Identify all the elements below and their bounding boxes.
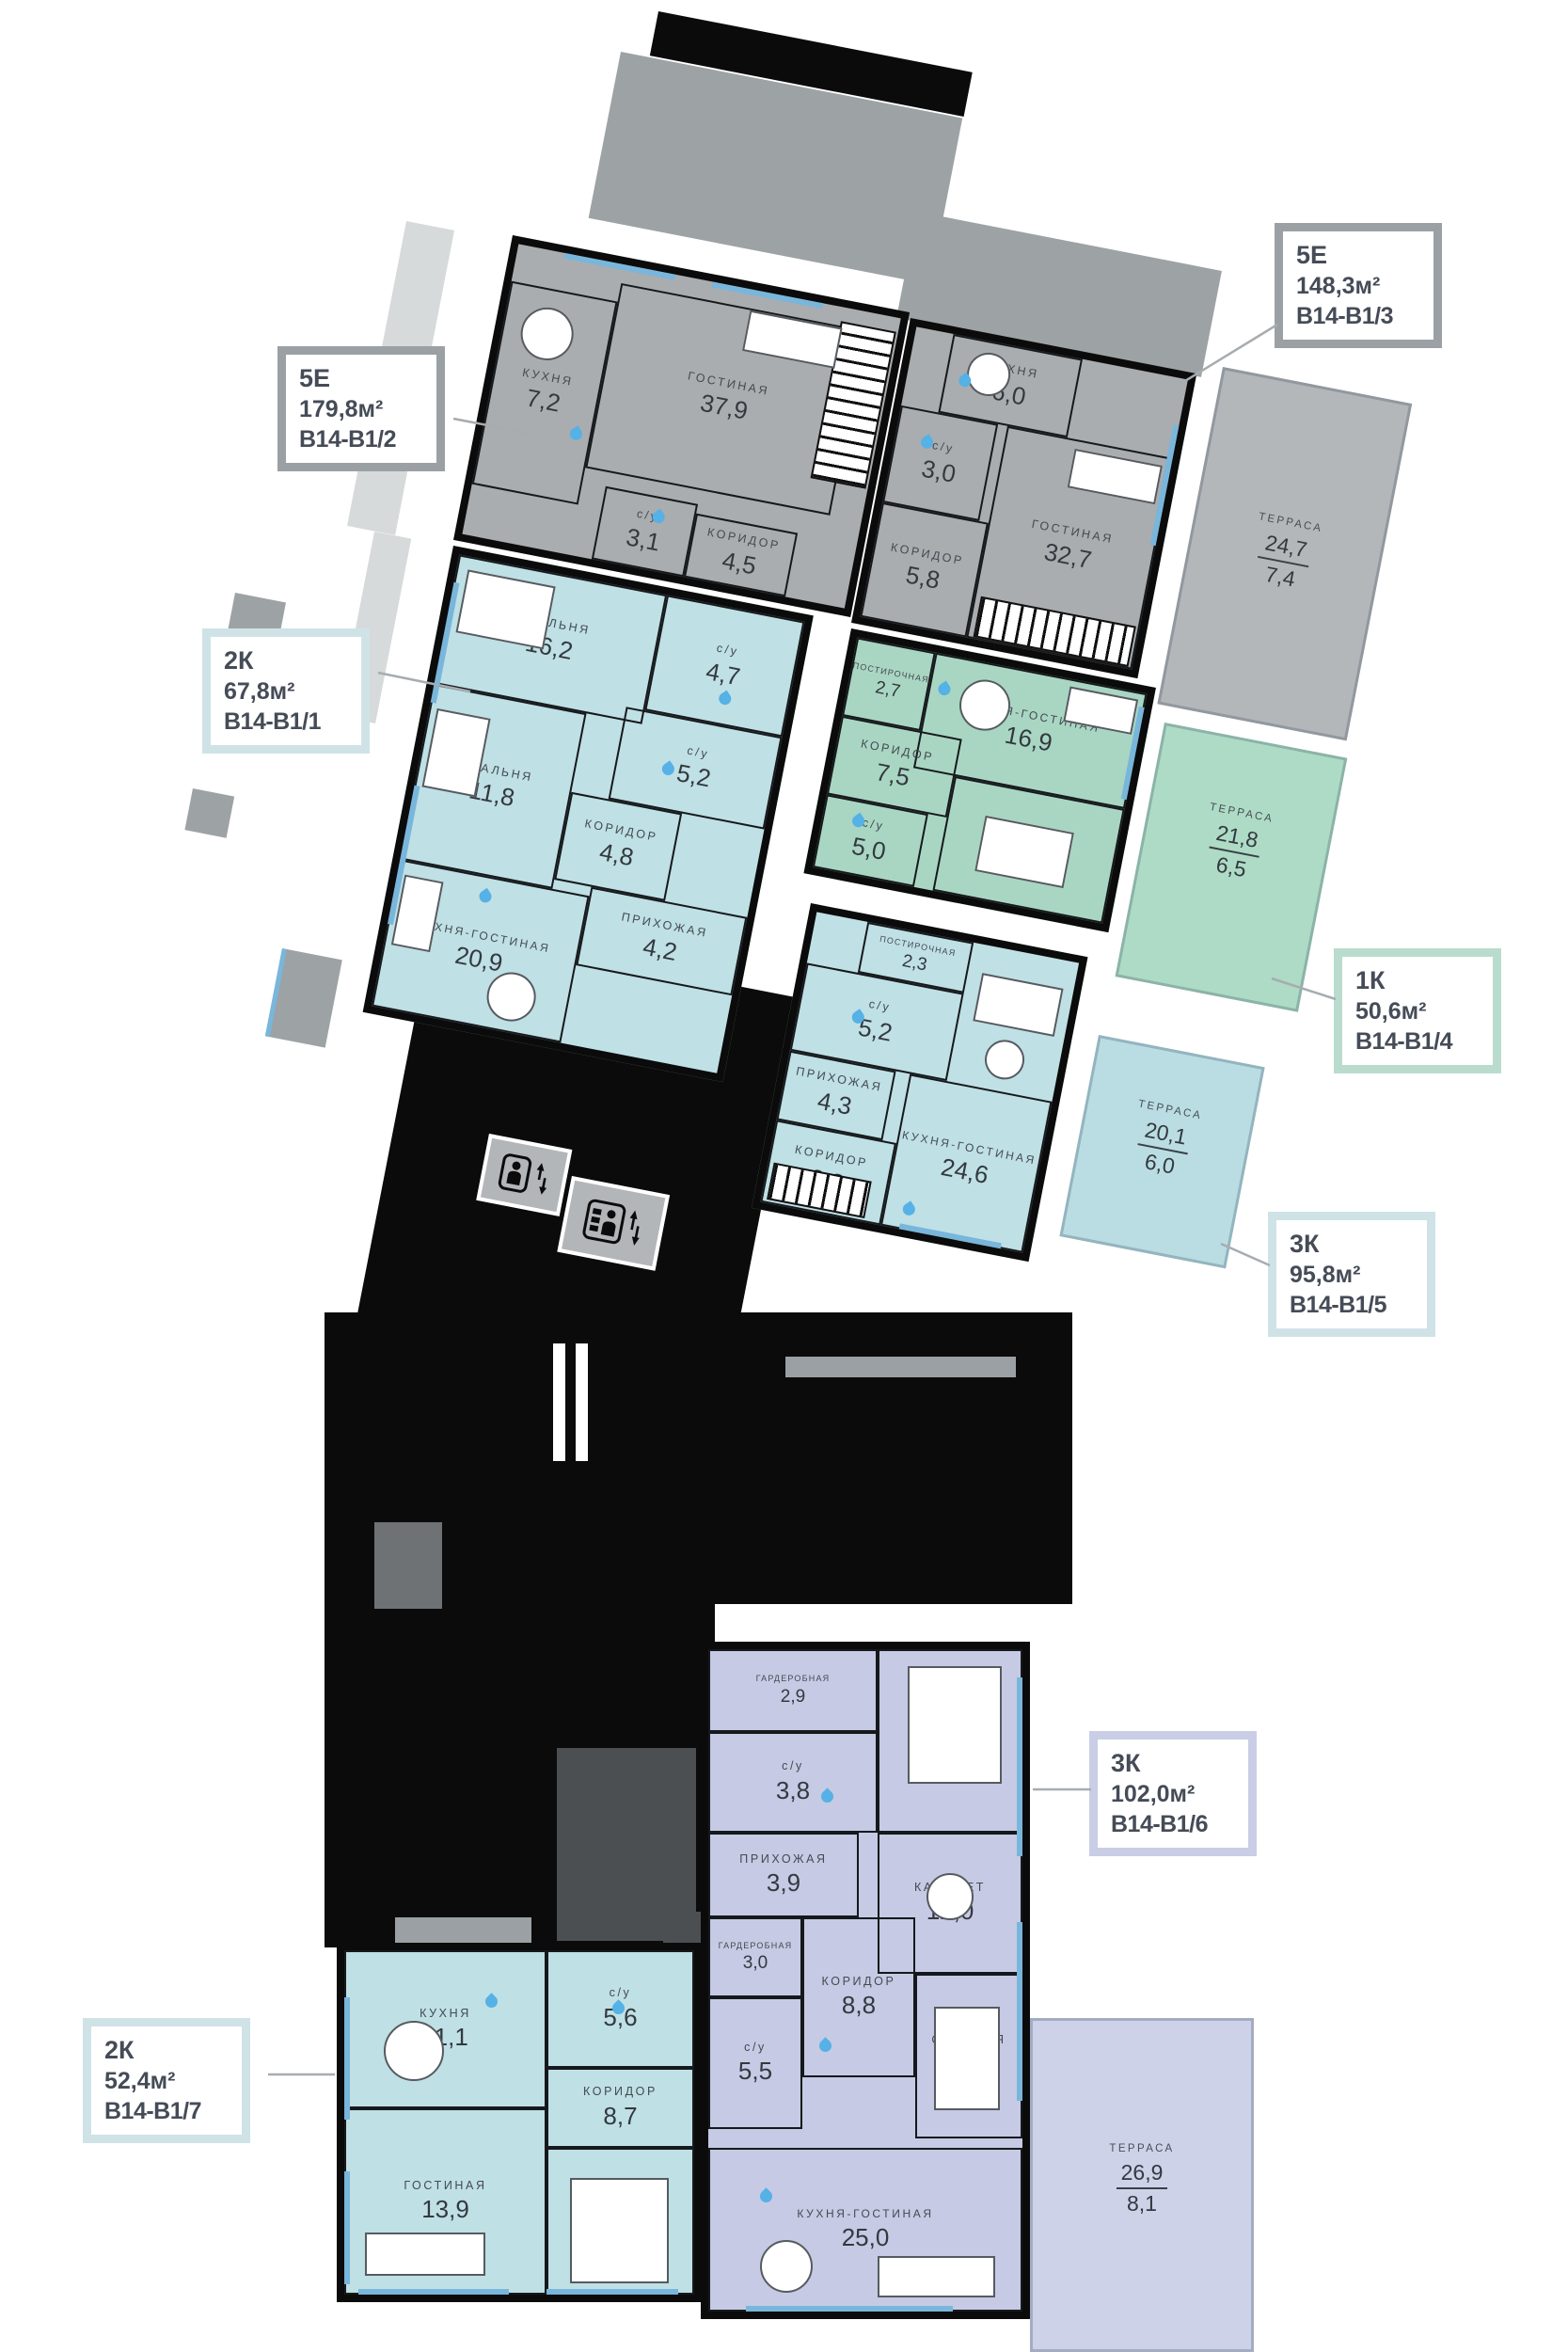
room-hall: ПРИХОЖАЯ 3,9 (708, 1833, 859, 1917)
room-bathroom: с/у 5,5 (708, 1997, 802, 2129)
unit-callout-v14-v1-7[interactable]: 2К 52,4м² В14-В1/7 (83, 2018, 250, 2143)
shaft-slit (576, 1343, 588, 1461)
apartment-unit-v14-v1-3[interactable]: КУХНЯ 6,0 с/у 3,0 КОРИДОР 5,8 ГОСТИНАЯ 3… (851, 318, 1196, 678)
bed-icon (570, 2178, 669, 2283)
room-hall: ПРИХОЖАЯ 4,2 (576, 887, 747, 996)
terrace-area: 21,86,5 (1203, 819, 1264, 884)
unit-callout-v14-v1-2[interactable]: 5Е 179,8м² В14-В1/2 (277, 346, 445, 471)
room-corridor: КОРИДОР 8,8 (802, 1917, 915, 2077)
room-wardrobe: ГАРДЕРОБНАЯ 2,9 (708, 1649, 878, 1732)
balcony-slab (265, 948, 342, 1048)
balcony-slab (184, 788, 234, 838)
terrace-area: 24,77,4 (1253, 529, 1314, 594)
terrace-purple: ТЕРРАСА 26,98,1 (1030, 2018, 1254, 2352)
apartment-unit-v14-v1-4[interactable]: ПОСТИРОЧНАЯ 2,7 КУХНЯ-ГОСТИНАЯ 16,9 КОРИ… (803, 628, 1156, 932)
terrace-green: ТЕРРАСА 21,86,5 (1116, 723, 1348, 1012)
table-icon (927, 1873, 974, 1920)
window-strip (546, 2289, 678, 2295)
window-strip (1017, 1922, 1022, 2101)
table-icon (760, 2240, 813, 2293)
corridor-slab (785, 1357, 1016, 1377)
corridor-slab (395, 1917, 531, 1943)
room-bathroom: с/у 3,8 (708, 1732, 878, 1833)
sofa-icon (973, 973, 1063, 1037)
apartment-unit-v14-v1-7[interactable]: КУХНЯ 11,1 с/у 5,6 КОРИДОР 8,7 ГОСТИНАЯ … (337, 1943, 702, 2302)
terrace-area: 20,16,0 (1132, 1117, 1194, 1182)
apartment-unit-v14-v1-5[interactable]: ПОСТИРОЧНАЯ 2,3 с/у 5,2 ПРИХОЖАЯ 4,3 КОР… (752, 903, 1087, 1262)
window-strip (1017, 1677, 1022, 1856)
room-corridor: КОРИДОР 8,7 (546, 2068, 694, 2148)
room-wardrobe: ГАРДЕРОБНАЯ 3,0 (708, 1917, 802, 1997)
room-corridor: КОРИДОР 4,5 (684, 514, 798, 597)
table-icon (981, 1037, 1027, 1083)
sofa-icon (878, 2256, 995, 2297)
unit-callout-v14-v1-4[interactable]: 1К 50,6м² В14-В1/4 (1334, 948, 1501, 1073)
unit-callout-v14-v1-3[interactable]: 5Е 148,3м² В14-В1/3 (1275, 223, 1442, 348)
floor-plan: ТЕРРАСА 24,77,4 ТЕРРАСА 21,86,5 ТЕРРАСА … (0, 0, 1568, 2352)
room-kitchen: КУХНЯ 11,1 (344, 1950, 546, 2108)
room-laundry: ПОСТИРОЧНАЯ 2,7 (842, 637, 936, 731)
room-bathroom: с/у 3,1 (592, 486, 698, 578)
shaft-slit (553, 1343, 565, 1461)
service-shaft (374, 1522, 442, 1609)
window-strip (358, 2289, 509, 2295)
terrace-blue: ТЕРРАСА 20,16,0 (1059, 1035, 1264, 1268)
unit-callout-v14-v1-1[interactable]: 2К 67,8м² В14-В1/1 (202, 628, 370, 754)
bed-icon (908, 1666, 1002, 1784)
terrace-gray: ТЕРРАСА 24,77,4 (1157, 367, 1412, 740)
terrace-area: 26,98,1 (1117, 2160, 1168, 2217)
bed-icon (934, 2007, 1000, 2110)
room-bathroom: с/у 3,0 (882, 405, 998, 521)
unit-callout-v14-v1-5[interactable]: 3К 95,8м² В14-В1/5 (1268, 1212, 1435, 1337)
apartment-unit-v14-v1-6[interactable]: ГАРДЕРОБНАЯ 2,9 с/у 3,8 СПАЛЬНЯ 17,1 ПРИ… (701, 1642, 1030, 2319)
window-strip (344, 1997, 350, 2120)
window-strip (746, 2306, 953, 2312)
window-strip (344, 2171, 350, 2284)
table-icon (384, 2021, 444, 2081)
unit-callout-v14-v1-6[interactable]: 3К 102,0м² В14-В1/6 (1089, 1731, 1257, 1856)
sofa-icon (365, 2233, 485, 2276)
window-strip (563, 253, 675, 280)
